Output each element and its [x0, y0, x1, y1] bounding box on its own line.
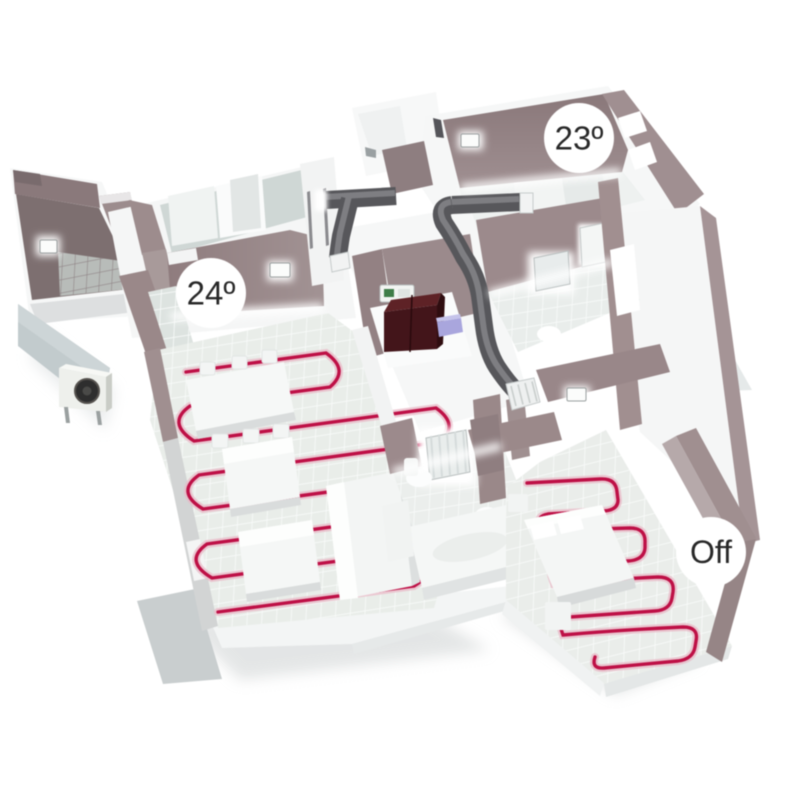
- svg-text:23º: 23º: [555, 120, 604, 157]
- svg-text:24º: 24º: [187, 275, 236, 312]
- svg-text:Off: Off: [690, 534, 732, 570]
